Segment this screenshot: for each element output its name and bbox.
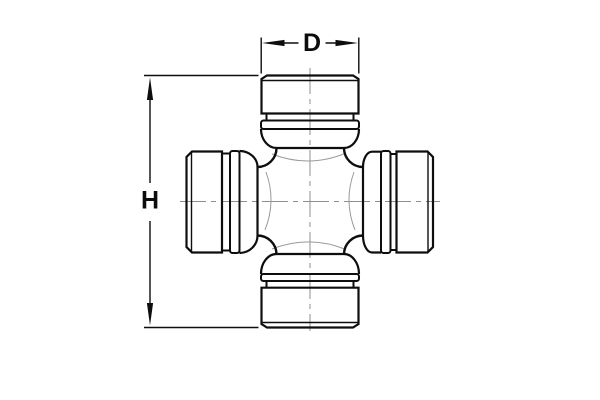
svg-text:D: D: [303, 29, 321, 57]
svg-text:H: H: [141, 187, 159, 215]
